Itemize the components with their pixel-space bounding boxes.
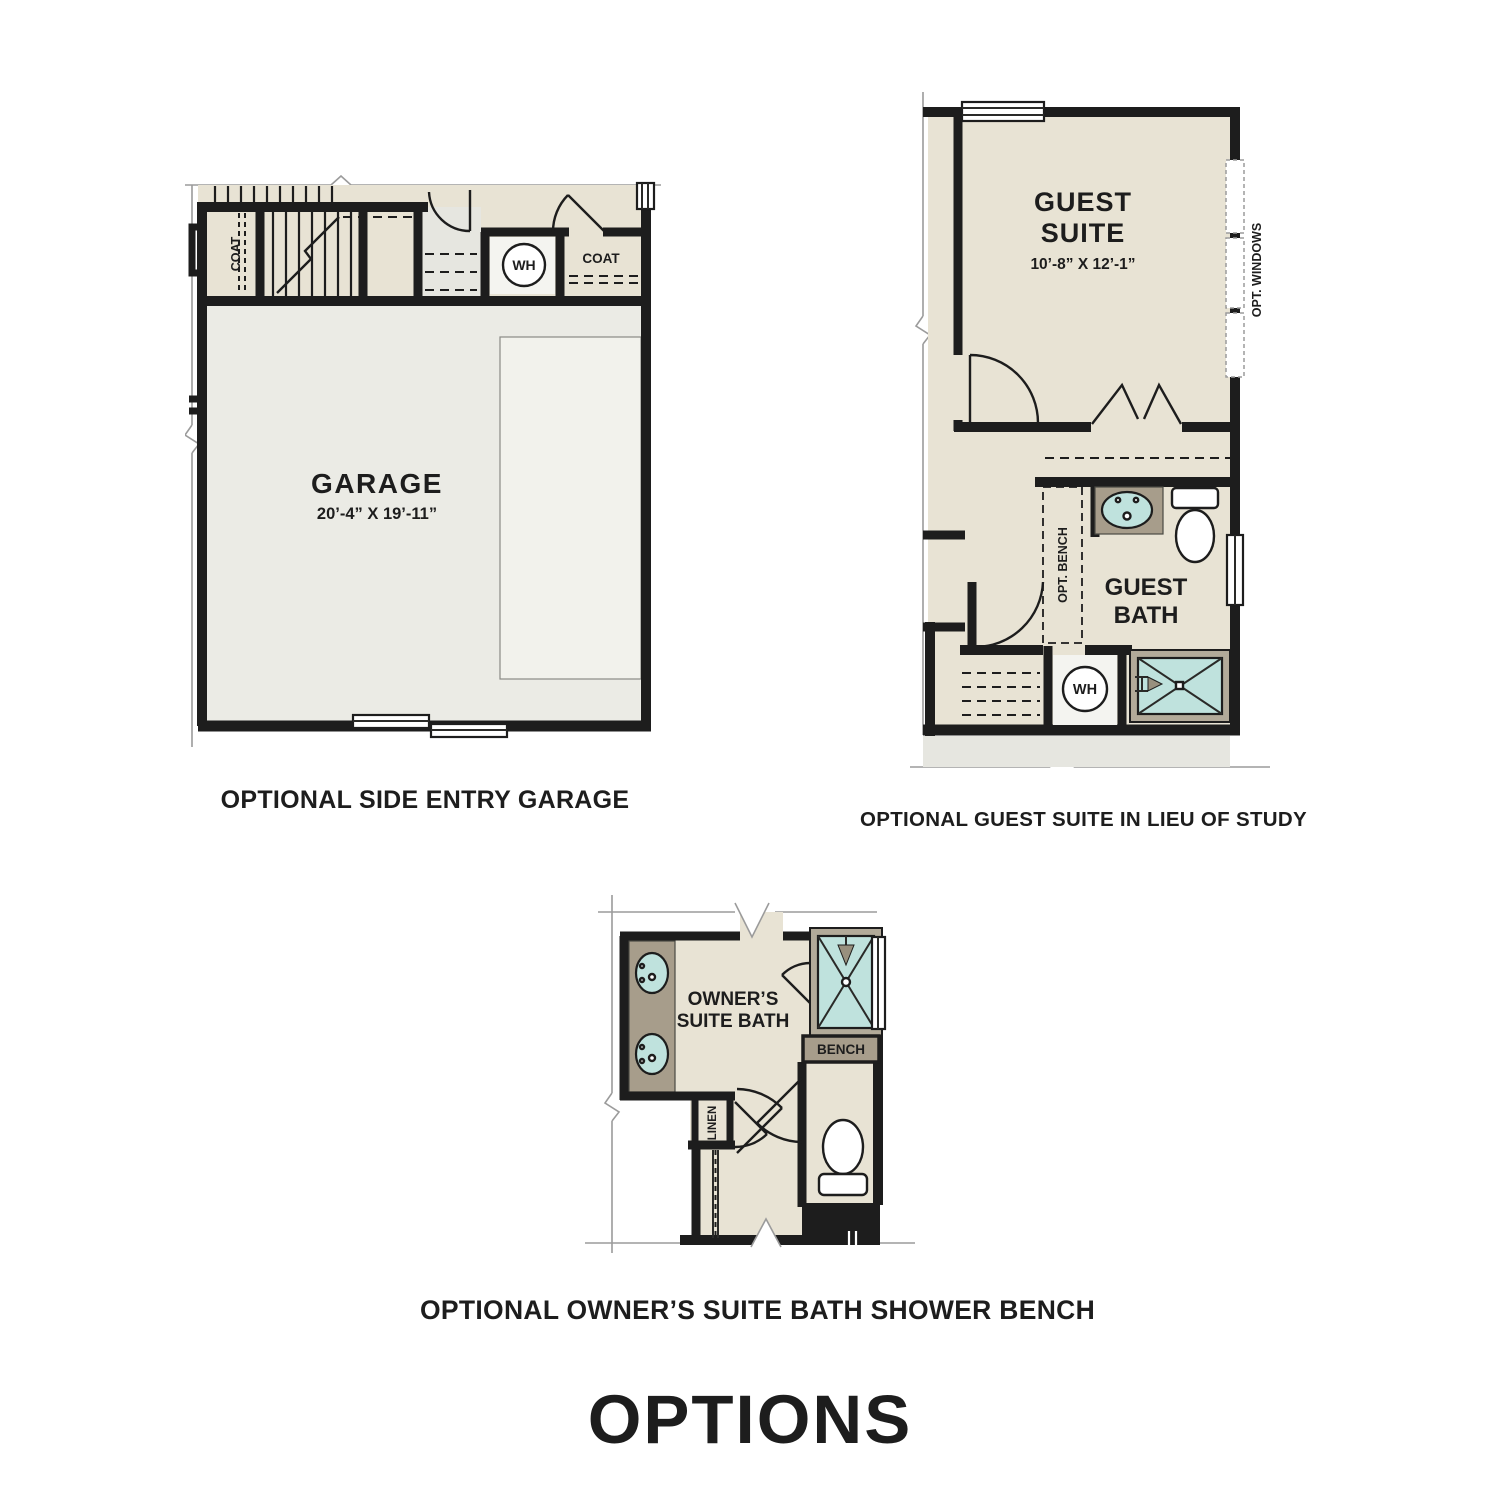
sink-icon — [1102, 492, 1152, 528]
water-heater-label: WH — [1073, 682, 1097, 698]
owners-bath-floor-plan: OWNER’S SUITE BATH BENCH LINEN — [585, 895, 915, 1265]
guest-suite-plan-caption: OPTIONAL GUEST SUITE IN LIEU OF STUDY — [860, 808, 1300, 832]
owners-bath-label-1: OWNER’S — [688, 989, 779, 1010]
linen-label: LINEN — [707, 1106, 719, 1141]
opt-windows-label: OPT. WINDOWS — [1250, 223, 1264, 317]
options-floorplan-sheet: WH COAT COAT GARAGE 20’-4” X 19’-11” — [0, 0, 1500, 1500]
coat-left-label: COAT — [229, 236, 243, 271]
shower-glass-door — [872, 937, 885, 1029]
page-title: OPTIONS — [525, 1380, 975, 1459]
guest-suite-label-2: SUITE — [1041, 218, 1126, 248]
garage-room-dims: 20’-4” X 19’-11” — [317, 505, 437, 523]
guest-suite-floor-plan: WH GUEST SUITE 10’-8” X 12’-1” GUEST BAT… — [910, 90, 1270, 790]
wall-mass — [802, 1203, 880, 1249]
coat-right-label: COAT — [582, 251, 620, 266]
vanity-counter — [629, 941, 675, 1092]
toilet-icon — [1172, 488, 1218, 562]
garage-room-label: GARAGE — [311, 468, 443, 499]
owners-bath-label-2: SUITE BATH — [677, 1011, 790, 1032]
top-window-icon — [962, 102, 1044, 121]
shower-icon — [1130, 650, 1230, 722]
optional-windows-icon — [1226, 160, 1244, 377]
guest-bath-label-2: BATH — [1114, 602, 1179, 629]
bench-label: BENCH — [817, 1042, 865, 1057]
sink-icon — [636, 1034, 668, 1074]
guest-bath-label-1: GUEST — [1105, 574, 1188, 601]
opt-bench-label: OPT. BENCH — [1056, 527, 1070, 603]
vanity-counter — [1095, 487, 1163, 534]
sink-icon — [636, 953, 668, 993]
side-window-icon — [637, 183, 654, 209]
toilet-icon — [819, 1120, 867, 1195]
owners-bath-plan-caption: OPTIONAL OWNER’S SUITE BATH SHOWER BENCH — [420, 1295, 1080, 1326]
water-heater-label: WH — [512, 257, 535, 273]
bath-window-icon — [1227, 535, 1243, 605]
guest-suite-dims: 10’-8” X 12’-1” — [1030, 256, 1135, 273]
garage-floor-plan: WH COAT COAT GARAGE 20’-4” X 19’-11” — [185, 175, 665, 755]
garage-plan-caption: OPTIONAL SIDE ENTRY GARAGE — [185, 786, 665, 815]
guest-suite-label-1: GUEST — [1034, 187, 1132, 217]
garage-pad — [500, 337, 641, 679]
